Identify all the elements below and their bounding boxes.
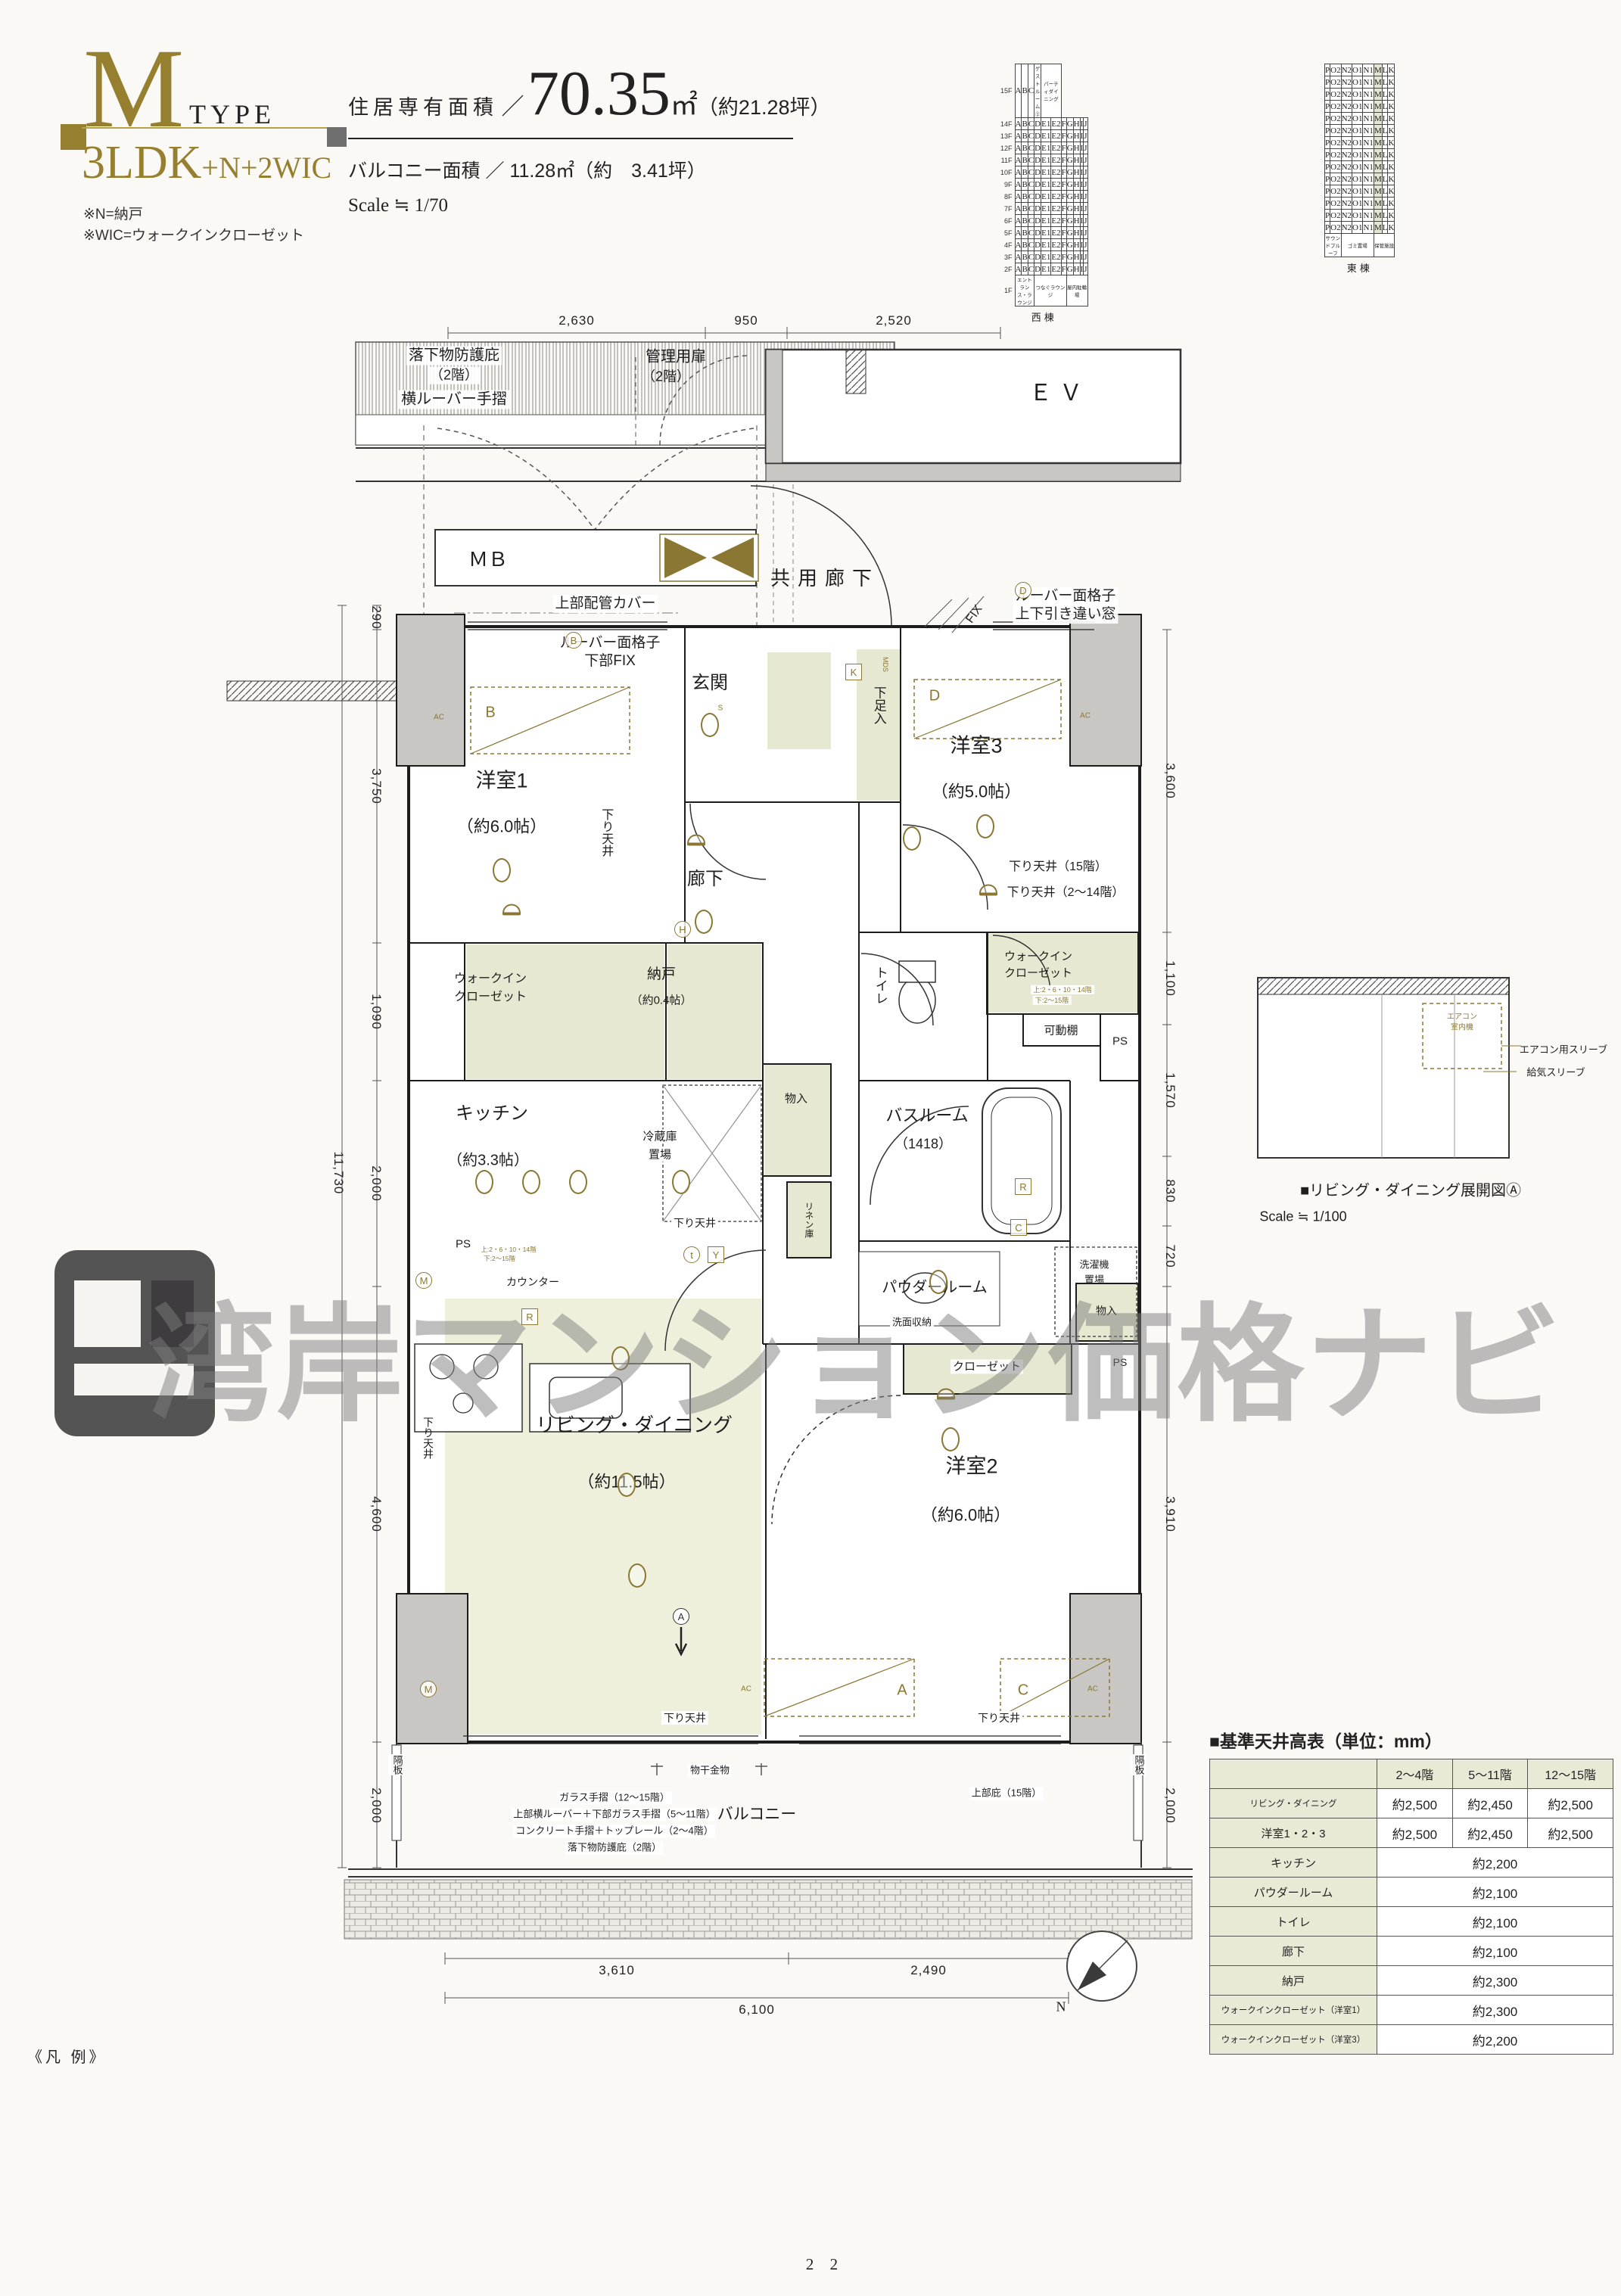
ceiling-value: 約2,500 — [1377, 1789, 1453, 1818]
ceiling-value: 約2,100 — [1377, 1937, 1613, 1966]
legend: 《凡 例》 — [27, 2045, 1600, 2071]
ceiling-value: 約2,450 — [1452, 1789, 1528, 1818]
ceiling-value: 約2,500 — [1528, 1789, 1613, 1818]
ceiling-value: 約2,200 — [1377, 1848, 1613, 1878]
ceiling-row-label: ウォークインクローゼット（洋室1） — [1210, 1996, 1377, 2025]
legend-title: 《凡 例》 — [27, 2045, 1600, 2067]
ceiling-value: 約2,100 — [1377, 1907, 1613, 1937]
brochure-page: M TYPE 3LDK+N+2WIC ※N=納戸 ※WIC=ウォークインクローゼ… — [0, 0, 1621, 2296]
ceiling-col-header: 12〜15階 — [1528, 1759, 1613, 1789]
ceiling-row-label: リビング・ダイニング — [1210, 1789, 1377, 1818]
ceiling-value: 約2,300 — [1377, 1966, 1613, 1996]
ceiling-value: 約2,500 — [1377, 1818, 1453, 1848]
ceiling-row-label: 廊下 — [1210, 1937, 1377, 1966]
ceiling-value: 約2,500 — [1528, 1818, 1613, 1848]
ceiling-col-header: 5〜11階 — [1452, 1759, 1528, 1789]
ceiling-table-body: 2〜4階5〜11階12〜15階リビング・ダイニング約2,500約2,450約2,… — [1209, 1759, 1616, 2055]
ceiling-row-label: 納戸 — [1210, 1966, 1377, 1996]
ceiling-value: 約2,450 — [1452, 1818, 1528, 1848]
watermark-text: 湾岸マンション価格ナビ — [148, 1262, 1570, 1446]
ceiling-row-label: 洋室1・2・3 — [1210, 1818, 1377, 1848]
ceiling-col-header: 2〜4階 — [1377, 1759, 1453, 1789]
ceiling-table-title: ■基準天井高表（単位：mm） — [1209, 1727, 1616, 1753]
ceiling-height-table: ■基準天井高表（単位：mm） 2〜4階5〜11階12〜15階リビング・ダイニング… — [1209, 1727, 1616, 2055]
ceiling-row-label: キッチン — [1210, 1848, 1377, 1878]
ceiling-table: 2〜4階5〜11階12〜15階リビング・ダイニング約2,500約2,450約2,… — [1209, 1759, 1613, 2055]
ceiling-value: 約2,100 — [1377, 1878, 1613, 1907]
ceiling-row-label: パウダールーム — [1210, 1878, 1377, 1907]
ceiling-value: 約2,300 — [1377, 1996, 1613, 2025]
ceiling-row-label: トイレ — [1210, 1907, 1377, 1937]
page-number: 2 2 — [795, 2255, 855, 2274]
